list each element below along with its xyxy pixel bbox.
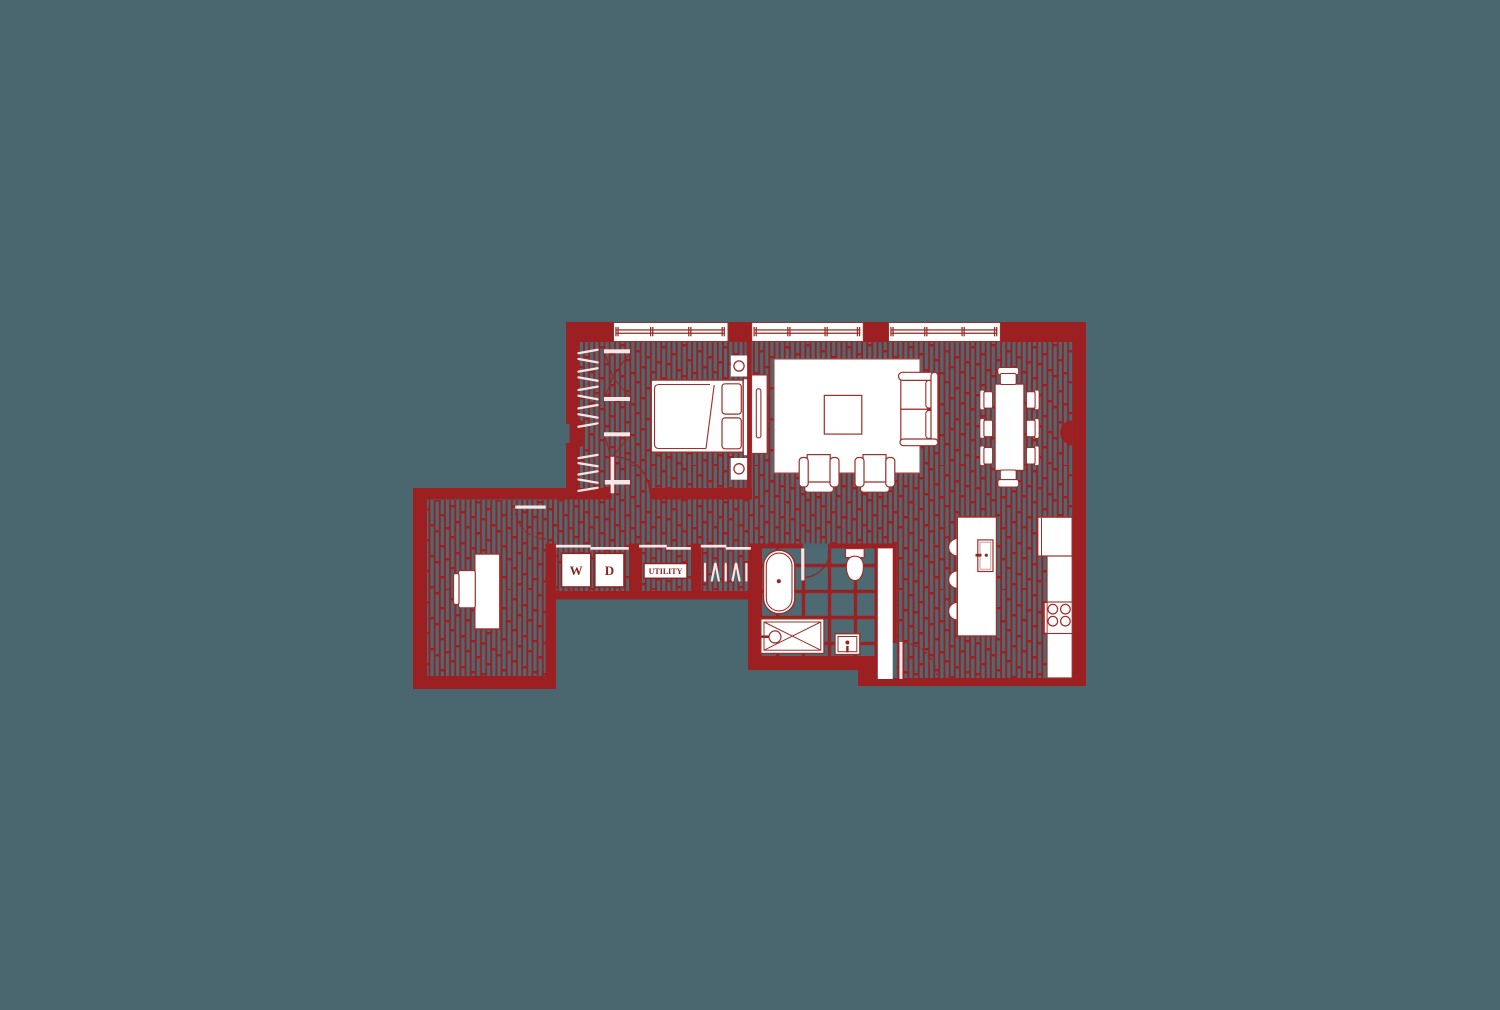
svg-text:UTILITY: UTILITY — [649, 567, 683, 576]
svg-text:D: D — [605, 563, 614, 578]
svg-text:W: W — [570, 563, 583, 578]
